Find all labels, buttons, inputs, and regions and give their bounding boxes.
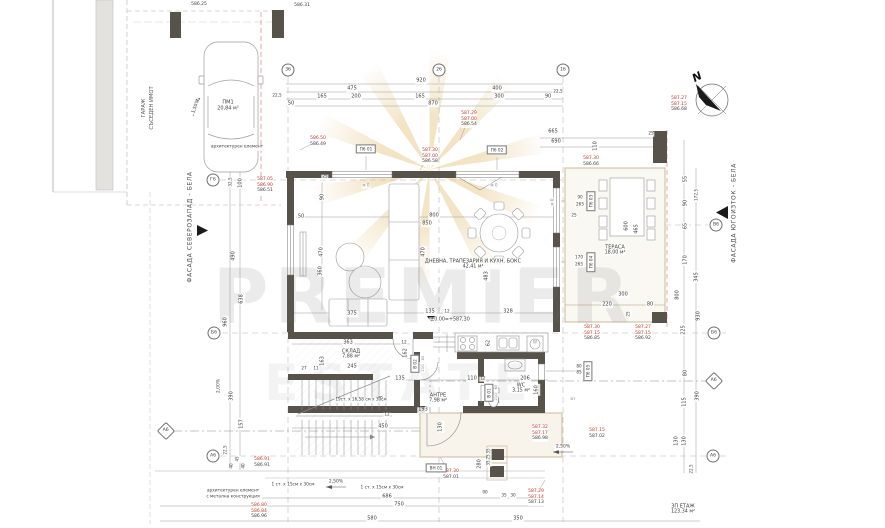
dim-label: 62	[486, 339, 492, 347]
dim-label: 40	[230, 462, 235, 469]
dim-label: 12	[383, 413, 390, 418]
dim-label: 265	[574, 263, 584, 268]
opening-tag: П6 05	[583, 361, 592, 381]
dim-label: 135	[394, 376, 406, 382]
elevation-label: 587.30	[583, 156, 599, 162]
elevation-label: 587.02	[589, 434, 605, 440]
dim-label: 80	[683, 369, 689, 377]
room-label: ТЕРАСА18,00 м²	[605, 245, 626, 256]
elevation-label: 586.58	[422, 159, 438, 165]
elevation-label: 586.98	[532, 436, 548, 442]
grid-axis-label: 3б	[285, 68, 291, 73]
dim-label: архитектурен елемент	[210, 146, 264, 151]
opening-tag: В 02	[410, 355, 419, 373]
room-label: АНТРЕ7,98 м²	[429, 393, 447, 404]
dim-label: 80	[646, 302, 654, 308]
elevation-stack: 587.29587.14587.13	[528, 489, 544, 506]
dim-label: 12	[479, 377, 486, 382]
elevation-stack: 587.15587.02	[589, 428, 605, 439]
dim-label: 1 ст. х 15см х 30см	[359, 487, 404, 492]
floor-plan-canvas: PREMIER ESTATE ФАСАДА СЕВЕРОЗАПАД - БЕЛА…	[0, 0, 885, 528]
dim-label: 220	[601, 302, 613, 308]
dim-label: 162	[403, 347, 409, 359]
dim-label: 245	[346, 364, 358, 370]
dim-label: 206	[519, 376, 531, 382]
elevation-label: 587.29	[528, 489, 544, 495]
dim-label: 130	[674, 435, 680, 447]
grid-axis-label: А6	[711, 378, 717, 383]
room-label: ДНЕВНА, ТРАПЕЗАРИЯ И КУХН. БОКС42,41 м²	[425, 259, 521, 270]
dim-label: 135	[424, 309, 436, 315]
dim-label: 390	[695, 390, 701, 402]
dim-label: 12	[400, 341, 407, 346]
dim-label: 470	[421, 246, 427, 258]
room-label: WC3,15 м²	[512, 383, 530, 394]
opening-tag: ВН 01	[426, 463, 447, 472]
elevation-label: 587.29	[461, 111, 477, 117]
north-compass-icon	[696, 84, 728, 116]
dim-label: 800	[428, 213, 440, 219]
dim-label: 35	[500, 494, 507, 499]
dim-label: 600	[624, 220, 630, 232]
dim-label: 170	[574, 256, 584, 261]
dim-label: 130	[438, 421, 444, 433]
elevation-label: 586.25	[191, 2, 207, 8]
elevation-label: 587.27	[671, 96, 687, 102]
dim-label: 130	[682, 435, 688, 447]
dim-label: 80	[421, 355, 425, 362]
dim-label: 157	[239, 418, 245, 430]
dim-label: 345	[694, 271, 700, 283]
room-area: 7,88 м²	[342, 355, 360, 360]
grid-axis-label: Г6	[210, 178, 216, 183]
dim-label: 80	[575, 365, 582, 370]
dim-label: 50	[297, 214, 305, 220]
elevation-label: 586.85	[584, 336, 600, 342]
opening-tag: П6 04	[586, 252, 595, 272]
dim-label: 25	[627, 310, 632, 317]
dim-label: м 0	[551, 197, 556, 206]
dim-label: 22,5	[690, 463, 695, 474]
grid-axis-bubble: 2б	[433, 64, 446, 77]
dim-label: 90	[320, 193, 326, 201]
dim-label: 225	[681, 324, 687, 336]
dim-label: 483	[484, 270, 490, 282]
dim-label: 800	[675, 289, 681, 301]
elevation-label: 587.01	[443, 475, 459, 481]
dim-label: 265	[575, 203, 585, 208]
facade-label-northwest: ФАСАДА СЕВЕРОЗАПАД - БЕЛА	[187, 171, 194, 282]
dim-label: 22,5	[552, 90, 563, 95]
dim-label: 172,5	[695, 188, 700, 202]
dim-label: 90	[544, 94, 552, 100]
facade-arrow-right	[716, 206, 728, 219]
elevation-stack: 587.29587.00586.54	[461, 111, 477, 128]
dim-label: 475	[346, 86, 358, 92]
dim-label: 110	[593, 140, 599, 152]
elevation-label: 587.30	[422, 148, 438, 154]
grid-axis-label: 2б	[436, 68, 442, 73]
opening-tag: В 01	[484, 384, 493, 402]
opening-tag: П6 03	[586, 191, 595, 211]
dim-label: 750	[393, 502, 405, 508]
elevation-label: 586.49	[310, 142, 326, 148]
elevation-label: 586.31	[294, 3, 310, 9]
grid-axis-label: А6	[163, 428, 169, 433]
elevation-label: 586.66	[583, 162, 599, 168]
dim-label: 22,5	[224, 444, 229, 455]
elevation-label: 587.32	[532, 425, 548, 431]
dim-label: 210	[494, 392, 498, 401]
elevation-stack: 587.05586.90586.51	[257, 177, 273, 194]
grid-axis-label: А6	[210, 454, 216, 459]
dim-label: ВТ	[570, 397, 577, 401]
elevation-stack: 587.27587.15586.68	[671, 96, 687, 113]
elevation-label: 587.30	[584, 325, 600, 331]
dim-label: 60	[494, 384, 498, 391]
elevation-label: 586.54	[461, 122, 477, 128]
grid-axis-bubble: 3б	[282, 64, 295, 77]
dim-label: 328	[502, 309, 514, 315]
dim-label: 638	[239, 293, 245, 305]
dim-label: м 0	[361, 184, 370, 189]
dim-label: 280	[477, 458, 483, 470]
elevation-label: 586.91	[254, 457, 270, 463]
interior-steps	[433, 334, 457, 352]
grid-axis-bubble: А6	[207, 450, 220, 463]
elevation-label: 586.92	[635, 336, 651, 342]
dim-label: 450	[377, 424, 389, 430]
dim-label: 20,84 м²	[216, 106, 240, 112]
elevation-label: 587.15	[589, 428, 605, 434]
dim-label: 210	[421, 363, 425, 372]
dim-label: 100	[238, 177, 244, 189]
dim-label: 665	[547, 129, 559, 135]
elevation-label: 586.50	[310, 136, 326, 142]
grid-axis-label: Б6	[711, 331, 717, 336]
dim-label: 45	[236, 455, 241, 462]
dim-label: 200	[350, 94, 362, 100]
dim-label: 25	[570, 214, 577, 219]
elevation-stack: 586.91586.91	[254, 457, 270, 468]
dim-label: 2,50%	[328, 481, 344, 486]
grid-axis-bubble: Б6	[708, 327, 721, 340]
grid-axis-bubble: В6	[710, 219, 723, 232]
elevation-stack: 586.31	[294, 3, 310, 9]
dim-label: 870	[427, 101, 439, 107]
room-area: 18,00 м²	[605, 251, 626, 256]
dim-label: 40	[242, 462, 247, 469]
room-area: 42,41 м²	[425, 265, 521, 270]
dim-label: 2,00%	[218, 378, 223, 394]
elevation-stack: 586.25	[191, 2, 207, 8]
grid-axis-bubble: 1б	[557, 64, 570, 77]
dim-label: ±0.00=+587,30	[429, 317, 471, 322]
dim-label: 360	[318, 265, 324, 277]
elevation-label: 586.80	[251, 503, 267, 509]
room-label: ЗП ЕТАЖ123,34 м²	[671, 504, 695, 515]
elevation-stack: 586.80586.84586.96	[251, 503, 267, 520]
garage-label-subtitle: СЪСЕДЕН ИМОТ	[149, 86, 155, 129]
dim-label: 193	[417, 407, 429, 413]
dim-label: 465	[634, 223, 640, 235]
dim-label: архитектурен елемент	[206, 490, 260, 495]
dim-label: 350	[512, 516, 524, 522]
dim-label: 11	[312, 367, 319, 372]
dim-label: 55	[683, 175, 689, 183]
dim-label: 400	[491, 86, 503, 92]
room-area: 7,98 м²	[429, 399, 447, 404]
dim-label: 690	[550, 139, 562, 145]
dim-label: 2,50%	[555, 446, 571, 451]
elevation-label: 586.91	[254, 463, 270, 469]
grid-axis-label: В6	[713, 223, 719, 228]
dim-label: 363	[342, 340, 354, 346]
grid-axis-label: 1б	[560, 68, 566, 73]
elevation-stack: 586.50586.49	[310, 136, 326, 147]
elevation-label: 586.51	[257, 188, 273, 194]
dim-label: с метална конструкция	[205, 496, 260, 501]
dim-label: 50	[287, 101, 295, 107]
dim-label: 960	[223, 316, 229, 328]
elevation-stack: 587.30587.00586.58	[422, 148, 438, 165]
elevation-label: 587.05	[257, 177, 273, 183]
dim-label: 686	[381, 494, 393, 500]
opening-tag: П6 01	[356, 144, 376, 153]
dim-label: 90	[481, 491, 488, 496]
dining-table	[468, 202, 530, 264]
dim-label: 300	[493, 94, 505, 100]
dim-label: 12	[443, 310, 450, 315]
grid-axis-label: Б6	[211, 331, 217, 336]
dim-label: 160	[534, 384, 540, 396]
dim-label: 300	[617, 292, 629, 298]
room-area: 3,15 м²	[512, 389, 530, 394]
dim-label: 470	[319, 246, 325, 258]
dim-label: 90	[576, 196, 583, 201]
dim-label: м 0	[489, 184, 498, 189]
garage-label-title: ГАРАЖ	[141, 99, 147, 118]
dim-label: 22,5	[271, 94, 282, 99]
dim-label: 25	[321, 175, 328, 180]
elevation-label: 586.96	[251, 514, 267, 520]
dim-label: 85	[575, 371, 582, 376]
dim-label: 165	[414, 94, 426, 100]
elevation-label: 586.68	[671, 107, 687, 113]
elevation-stack: 587.30587.15586.85	[584, 325, 600, 342]
dim-label: 32,5	[229, 176, 234, 187]
facade-arrow-left	[197, 225, 208, 236]
dim-label: 490	[231, 250, 237, 262]
dim-label: 930	[696, 310, 702, 322]
dim-label: 390	[229, 390, 235, 402]
dim-label: 163	[320, 355, 326, 367]
grid-axis-label: А6	[710, 454, 716, 459]
dim-label: 19ст. х 16,58 см х 30см	[334, 398, 387, 403]
elevation-label: 587.13	[528, 500, 544, 506]
dim-label: 850	[421, 221, 433, 227]
elevation-stack: 587.30586.66	[583, 156, 599, 167]
facade-label-southeast: ФАСАДА ЮГОИЗТОК - БЕЛА	[731, 163, 738, 263]
dim-label: 580	[366, 516, 378, 522]
dim-label: 110	[466, 376, 478, 382]
dim-label: 920	[415, 78, 427, 84]
opening-tag: П6 02	[487, 145, 507, 154]
dim-label: 115	[682, 396, 688, 408]
dim-label: 165	[316, 94, 328, 100]
dim-label: 1 ст. х 15см х 30см	[270, 484, 315, 489]
dim-label: 170	[683, 254, 689, 266]
dim-label: 30	[509, 494, 516, 499]
grid-axis-bubble: А6	[707, 450, 720, 463]
grid-axis-bubble: Б6	[208, 327, 221, 340]
room-area: 123,34 м²	[671, 510, 695, 515]
dim-label: 375	[346, 311, 358, 317]
elevation-stack: 587.32587.17586.98	[532, 425, 548, 442]
dim-label: W	[532, 341, 538, 346]
room-label: СКЛАД7,88 м²	[342, 349, 360, 360]
dim-label: 35	[487, 459, 492, 466]
grid-axis-bubble: Г6	[207, 174, 220, 187]
elevation-stack: 587.27587.15586.92	[635, 325, 651, 342]
dim-label: 25	[647, 132, 654, 137]
elevation-label: 587.27	[635, 325, 651, 331]
dim-label: 27	[300, 367, 307, 372]
dim-label: 90	[683, 199, 689, 207]
dim-label: 65	[683, 222, 689, 230]
